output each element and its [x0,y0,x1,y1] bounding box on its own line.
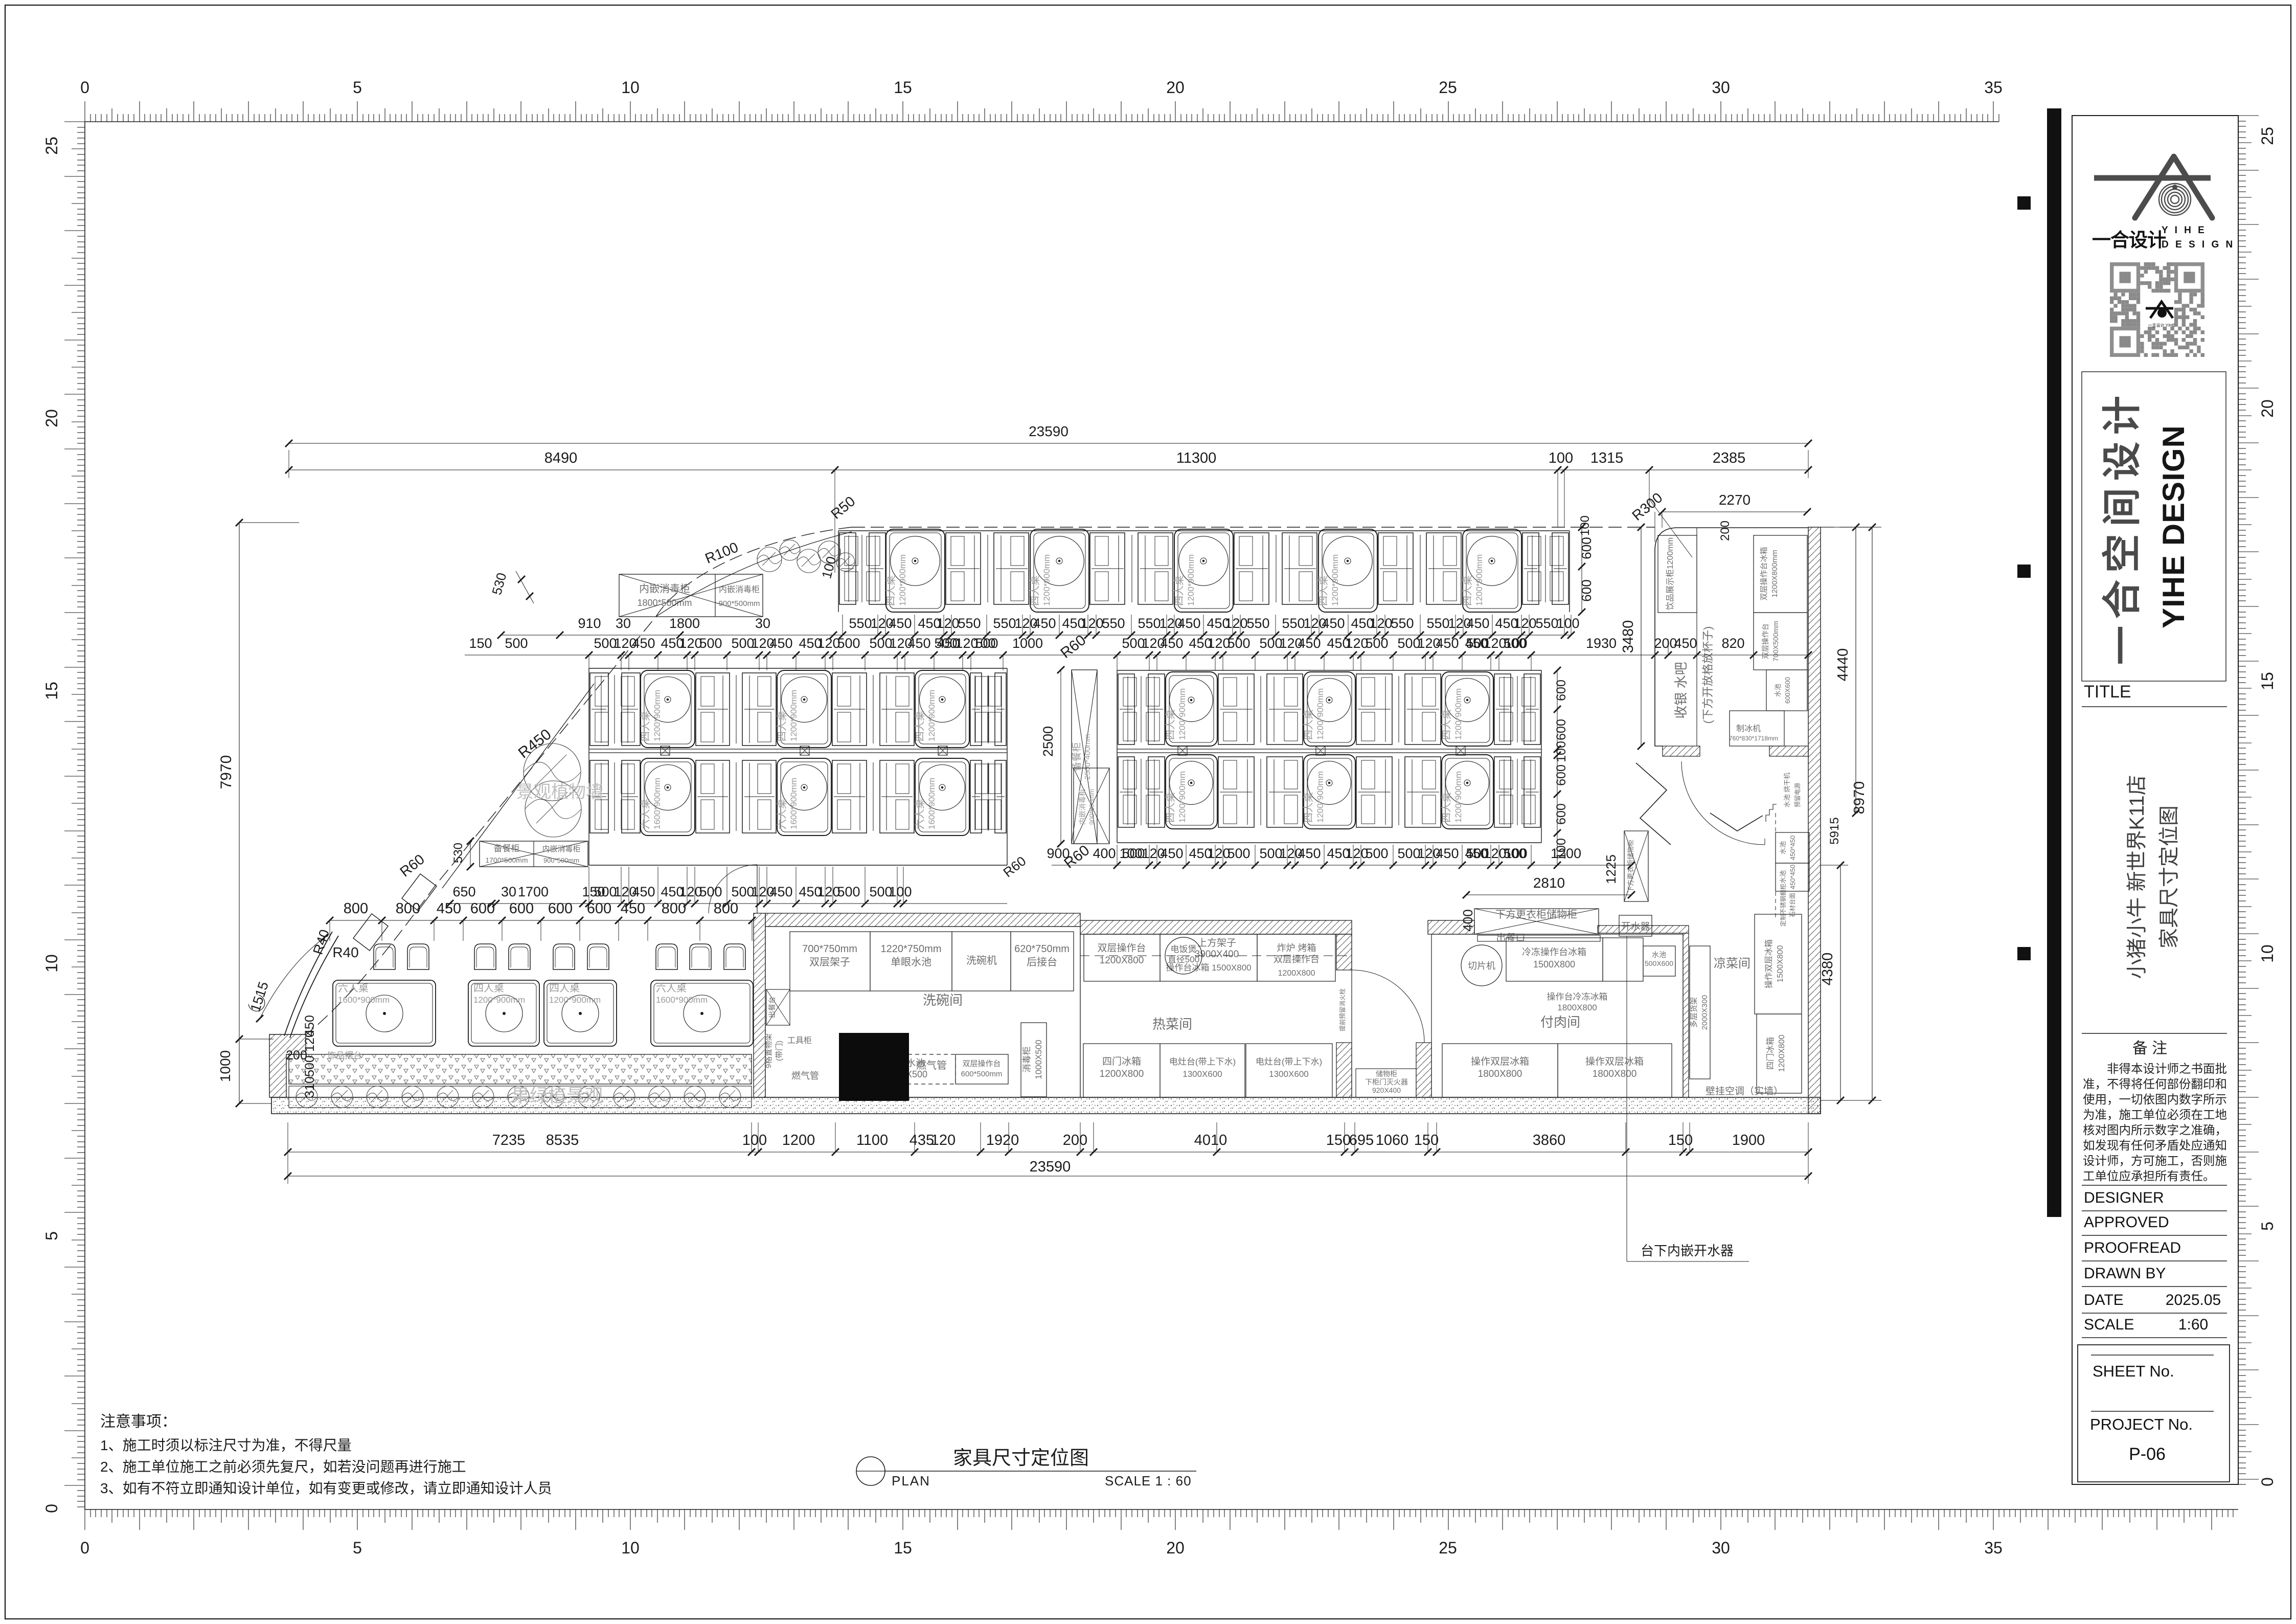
svg-text:100: 100 [1504,636,1527,651]
svg-text:23590: 23590 [1030,1159,1071,1175]
svg-text:消毒柜: 消毒柜 [1022,1047,1032,1073]
svg-text:水池: 水池 [1779,870,1787,884]
svg-text:800: 800 [714,900,738,917]
svg-text:10: 10 [621,78,640,97]
svg-text:100: 100 [889,884,912,899]
svg-text:四人桌: 四人桌 [885,575,897,606]
svg-text:1200*900mm: 1200*900mm [1177,688,1187,740]
svg-text:900*500mm: 900*500mm [543,856,579,864]
svg-text:30: 30 [616,616,631,631]
svg-text:3860: 3860 [1533,1132,1566,1148]
svg-text:四人桌: 四人桌 [1441,792,1452,823]
svg-text:450: 450 [889,616,912,631]
svg-text:定制不锈钢橱柜: 定制不锈钢橱柜 [1779,884,1787,927]
svg-text:燃气管: 燃气管 [916,1059,947,1071]
svg-text:25: 25 [1439,1539,1457,1557]
svg-text:1200*900mm: 1200*900mm [473,995,525,1005]
svg-text:一合空间设计: 一合空间设计 [2101,389,2144,665]
svg-text:1600*900mm: 1600*900mm [338,995,390,1005]
svg-text:双层操作台: 双层操作台 [962,1059,1001,1068]
svg-text:2270: 2270 [1719,492,1751,508]
svg-text:1200*900mm: 1200*900mm [898,554,907,606]
svg-text:台下内嵌开水器: 台下内嵌开水器 [1641,1243,1734,1258]
svg-text:SCALE: SCALE [2084,1316,2134,1333]
svg-text:450: 450 [1298,846,1321,861]
svg-text:1200*900mm: 1200*900mm [549,995,601,1005]
svg-text:30: 30 [1712,78,1730,97]
svg-text:四人桌: 四人桌 [1441,709,1452,740]
svg-text:1315: 1315 [1590,450,1624,466]
svg-text:1200*900mm: 1200*900mm [1315,771,1325,823]
svg-text:1800: 1800 [669,616,700,631]
svg-text:700X500mm: 700X500mm [1771,621,1780,661]
svg-text:30: 30 [501,884,516,899]
svg-text:切片机: 切片机 [1468,961,1495,971]
svg-text:1200: 1200 [782,1132,815,1148]
svg-text:450: 450 [907,636,930,651]
svg-text:四人桌: 四人桌 [1303,709,1314,740]
svg-text:800: 800 [396,900,420,917]
svg-text:预留电源: 预留电源 [1794,783,1801,807]
svg-text:为准，施工单位必须在工地: 为准，施工单位必须在工地 [2083,1108,2227,1121]
svg-text:DESIGNER: DESIGNER [2084,1189,2164,1206]
svg-text:1220*750mm: 1220*750mm [881,943,942,955]
svg-text:120: 120 [1080,616,1103,631]
svg-text:23590: 23590 [1029,423,1069,439]
svg-text:600: 600 [548,900,573,917]
svg-text:600*500mm: 600*500mm [961,1070,1003,1078]
svg-text:550: 550 [1391,616,1414,631]
svg-text:600: 600 [587,900,611,917]
svg-text:壁挂空调（实墙）: 壁挂空调（实墙） [1706,1086,1783,1097]
svg-text:8535: 8535 [546,1132,579,1148]
svg-text:550: 550 [1535,616,1558,631]
svg-text:500: 500 [1365,846,1388,861]
svg-text:双层操作台: 双层操作台 [1761,623,1769,659]
svg-text:R40: R40 [332,944,358,960]
svg-text:四人桌: 四人桌 [1462,575,1473,606]
svg-text:8490: 8490 [544,450,578,466]
svg-text:凉菜间: 凉菜间 [1714,957,1751,971]
svg-text:直径500: 直径500 [1168,955,1199,964]
svg-text:内嵌消毒柜: 内嵌消毒柜 [542,845,580,853]
svg-text:5: 5 [2258,1222,2277,1231]
svg-text:出餐台: 出餐台 [768,997,776,1018]
svg-text:5: 5 [42,1231,61,1240]
svg-text:六人桌: 六人桌 [338,982,369,994]
svg-text:4380: 4380 [1820,953,1836,986]
svg-text:上方架子: 上方架子 [1197,937,1236,949]
svg-text:TITLE: TITLE [2084,682,2131,702]
svg-text:工单位应承担所有责任。: 工单位应承担所有责任。 [2083,1169,2215,1183]
svg-text:四人桌: 四人桌 [1317,575,1329,606]
svg-text:六人桌: 六人桌 [776,799,788,829]
svg-text:400: 400 [1093,846,1116,861]
svg-text:695: 695 [1349,1132,1374,1148]
svg-text:10: 10 [621,1539,640,1557]
svg-text:DRAWN BY: DRAWN BY [2084,1265,2166,1282]
svg-text:11300: 11300 [1176,450,1217,466]
svg-text:25: 25 [2258,127,2277,145]
svg-text:550: 550 [958,616,981,631]
svg-text:100: 100 [1554,741,1568,762]
svg-text:600: 600 [1579,579,1594,601]
svg-text:2810: 2810 [1533,875,1565,891]
svg-text:1200X800mm: 1200X800mm [1770,550,1779,597]
svg-text:果绿植景观: 果绿植景观 [511,1085,603,1106]
svg-text:5: 5 [353,78,362,97]
svg-text:800: 800 [344,900,368,917]
svg-text:四人桌: 四人桌 [776,711,788,741]
svg-text:10: 10 [42,954,61,973]
svg-text:SCALE 1 : 60: SCALE 1 : 60 [1105,1473,1192,1488]
svg-text:操作双层冰箱: 操作双层冰箱 [1471,1056,1529,1067]
svg-text:450: 450 [1177,616,1200,631]
svg-text:如发现有任何矛盾处应通知: 如发现有任何矛盾处应通知 [2083,1139,2227,1152]
svg-text:15: 15 [894,1539,912,1557]
svg-text:600X600: 600X600 [1784,677,1791,704]
svg-text:1200*900mm: 1200*900mm [1177,771,1187,823]
svg-text:多层货架: 多层货架 [1690,997,1698,1028]
svg-text:700*750mm: 700*750mm [802,943,857,955]
svg-text:200: 200 [286,1048,307,1063]
svg-text:30: 30 [755,616,770,631]
svg-text:1500X800: 1500X800 [1776,945,1785,982]
svg-text:水池 烘干机: 水池 烘干机 [1783,773,1791,808]
svg-text:1600*900mm: 1600*900mm [789,778,799,829]
svg-text:1300X600: 1300X600 [1183,1069,1222,1079]
svg-text:1300X600: 1300X600 [1269,1069,1309,1079]
svg-text:四人桌: 四人桌 [1029,575,1041,606]
svg-text:120: 120 [936,616,959,631]
svg-text:4010: 4010 [1194,1132,1227,1148]
svg-text:500: 500 [505,636,528,651]
svg-text:3480: 3480 [1620,620,1636,653]
svg-text:操作双层冰箱: 操作双层冰箱 [1585,1056,1644,1067]
svg-text:水池: 水池 [1779,841,1787,854]
svg-text:内嵌消毒柜: 内嵌消毒柜 [1078,789,1086,825]
svg-text:9格置物架: 9格置物架 [764,1033,773,1068]
svg-text:500X600: 500X600 [1645,959,1673,967]
svg-text:单眼水池: 单眼水池 [891,956,931,968]
svg-text:洗碗间: 洗碗间 [923,993,963,1008]
svg-text:760*830*1718mm: 760*830*1718mm [1729,735,1778,742]
svg-text:500: 500 [837,884,860,899]
svg-text:10: 10 [2258,944,2277,963]
svg-text:450: 450 [1466,616,1489,631]
svg-text:双层操作台: 双层操作台 [1097,942,1146,954]
svg-text:DATE: DATE [2084,1292,2124,1309]
svg-text:530: 530 [451,843,465,863]
svg-text:1600*900mm: 1600*900mm [927,778,937,829]
svg-text:1、施工时须以标注尺寸为准，不得尺量: 1、施工时须以标注尺寸为准，不得尺量 [100,1437,352,1453]
svg-text:500: 500 [1227,636,1250,651]
svg-text:饰品摆台: 饰品摆台 [327,1051,362,1061]
svg-text:D E S I G N: D E S I G N [2162,239,2235,250]
svg-text:炸炉 烤箱: 炸炉 烤箱 [1277,943,1316,953]
svg-text:1800X800: 1800X800 [1478,1069,1522,1079]
svg-text:PLAN: PLAN [892,1473,930,1488]
svg-text:25: 25 [1439,78,1457,97]
svg-text:600: 600 [1554,803,1568,825]
svg-text:500: 500 [699,636,722,651]
svg-text:3、如有不符立即通知设计单位，如有变更或修改，请立即通知设计: 3、如有不符立即通知设计单位，如有变更或修改，请立即通知设计人员 [100,1480,552,1496]
svg-text:设计师，方可施工，否则施: 设计师，方可施工，否则施 [2083,1154,2227,1167]
svg-text:620*750mm: 620*750mm [1014,943,1070,955]
svg-text:15: 15 [2258,672,2277,690]
svg-text:六人桌: 六人桌 [914,799,926,829]
svg-text:备餐柜: 备餐柜 [494,844,520,853]
svg-text:450: 450 [437,900,461,917]
svg-text:450*450: 450*450 [1789,865,1797,889]
svg-text:1200*900mm: 1200*900mm [789,690,799,741]
svg-text:四人桌: 四人桌 [1165,792,1176,823]
svg-text:35: 35 [1984,1539,2003,1557]
svg-text:500: 500 [934,636,957,651]
svg-text:2500: 2500 [1040,726,1056,757]
svg-text:550: 550 [1138,616,1161,631]
svg-text:石材台面: 石材台面 [1788,893,1796,917]
svg-text:5915: 5915 [1828,817,1842,844]
svg-text:15: 15 [42,682,61,700]
svg-text:1930: 1930 [1586,636,1617,651]
svg-text:1600*900mm: 1600*900mm [652,778,662,829]
svg-text:15: 15 [894,78,912,97]
svg-text:7235: 7235 [492,1132,526,1148]
svg-text:150: 150 [1326,1132,1351,1148]
svg-text:四人桌: 四人桌 [640,711,651,741]
svg-text:下柜门灭火器: 下柜门灭火器 [1365,1078,1408,1086]
svg-text:四人桌: 四人桌 [1165,709,1176,740]
svg-text:120: 120 [931,1132,956,1148]
svg-text:电饭煲: 电饭煲 [1171,944,1197,954]
svg-text:四人桌: 四人桌 [473,982,504,994]
svg-text:内嵌消毒柜: 内嵌消毒柜 [719,585,760,594]
svg-text:1200*900mm: 1200*900mm [1474,554,1484,606]
svg-text:0: 0 [2258,1477,2277,1486]
svg-text:20: 20 [2258,399,2277,418]
svg-text:1800X800: 1800X800 [1593,1069,1637,1079]
svg-text:450: 450 [1298,636,1321,651]
svg-text:收银 水吧: 收银 水吧 [1673,662,1689,718]
svg-text:1225: 1225 [1603,854,1619,884]
svg-text:六人桌: 六人桌 [640,799,651,829]
svg-text:工具柜: 工具柜 [787,1036,812,1045]
svg-text:1200*900mm: 1200*900mm [1042,554,1052,606]
svg-text:电灶台(带上下水): 电灶台(带上下水) [1169,1057,1236,1067]
svg-text:5: 5 [353,1539,362,1557]
svg-text:(下方开放格放杯子): (下方开放格放杯子) [1701,626,1714,724]
svg-text:一合设计: 一合设计 [2092,230,2166,251]
svg-text:热菜间: 热菜间 [1152,1017,1192,1032]
svg-text:600: 600 [1554,764,1568,786]
svg-text:0: 0 [80,1539,89,1557]
svg-text:操作台冷冻冰箱: 操作台冷冻冰箱 [1547,992,1608,1002]
svg-text:1200*900mm: 1200*900mm [1453,688,1463,740]
svg-text:310: 310 [303,1076,317,1098]
svg-text:Y I H E: Y I H E [2162,225,2207,236]
svg-text:四人桌: 四人桌 [1173,575,1185,606]
svg-text:100: 100 [972,636,995,651]
svg-text:1200X800: 1200X800 [1100,955,1144,966]
svg-text:600: 600 [470,900,495,917]
svg-text:7970: 7970 [218,755,235,790]
svg-text:1100: 1100 [856,1132,888,1148]
svg-text:100: 100 [1504,846,1527,861]
svg-text:核对图内所示数字之准确，: 核对图内所示数字之准确， [2083,1123,2227,1137]
svg-text:2025.05: 2025.05 [2166,1292,2221,1309]
svg-text:910: 910 [578,616,601,631]
svg-text:四人桌: 四人桌 [1303,792,1314,823]
svg-text:100: 100 [742,1132,767,1148]
svg-text:APPROVED: APPROVED [2084,1214,2169,1231]
svg-text:150: 150 [469,636,492,651]
svg-text:小猪小牛 新世界K11店: 小猪小牛 新世界K11店 [2126,775,2148,979]
svg-text:P-06: P-06 [2129,1445,2166,1464]
svg-text:450: 450 [1436,636,1459,651]
svg-text:1000: 1000 [1012,636,1043,651]
svg-text:注意事项：: 注意事项： [100,1413,177,1430]
svg-text:120: 120 [1224,616,1247,631]
svg-text:2000X300: 2000X300 [1700,995,1709,1030]
svg-text:制冰机: 制冰机 [1736,724,1761,733]
svg-text:550: 550 [1102,616,1125,631]
svg-text:0: 0 [80,78,89,97]
svg-text:下方更衣柜储物柜: 下方更衣柜储物柜 [1495,909,1577,920]
svg-text:100: 100 [1554,838,1568,860]
svg-text:一言设计 YIHE: 一言设计 YIHE [2148,323,2175,328]
svg-text:PROOFREAD: PROOFREAD [2084,1239,2181,1256]
svg-text:600: 600 [1579,537,1594,559]
svg-text:920X400: 920X400 [1372,1086,1401,1094]
svg-text:800: 800 [662,900,686,917]
svg-text:450: 450 [632,884,655,899]
svg-text:2、施工单位施工之前必须先复尺，如若没问题再进行施工: 2、施工单位施工之前必须先复尺，如若没问题再进行施工 [100,1459,466,1475]
svg-text:1200X800: 1200X800 [1778,1034,1786,1072]
svg-text:600: 600 [1554,719,1568,740]
svg-text:四人桌: 四人桌 [914,711,926,741]
svg-text:450: 450 [769,884,792,899]
svg-text:100: 100 [1549,450,1573,466]
svg-text:450: 450 [1322,616,1345,631]
svg-text:电灶台(带上下水): 电灶台(带上下水) [1256,1057,1322,1067]
svg-text:1060: 1060 [1376,1132,1409,1148]
svg-text:1920: 1920 [986,1132,1019,1148]
svg-text:550: 550 [1282,616,1305,631]
svg-text:4440: 4440 [1835,648,1851,682]
svg-text:450: 450 [1674,636,1697,651]
svg-text:1200*900mm: 1200*900mm [1315,688,1325,740]
svg-text:450: 450 [1160,846,1183,861]
svg-text:500: 500 [837,636,860,651]
svg-text:水池: 水池 [1774,684,1782,697]
svg-text:洗碗机: 洗碗机 [966,955,997,966]
svg-text:500: 500 [1227,846,1250,861]
svg-text:120: 120 [1369,616,1392,631]
svg-text:820: 820 [1721,636,1744,651]
svg-text:30: 30 [1712,1539,1730,1557]
svg-text:非得本设计师之书面批: 非得本设计师之书面批 [2083,1062,2227,1075]
svg-text:1200*900mm: 1200*900mm [927,690,937,741]
svg-text:20: 20 [1166,78,1185,97]
svg-text:双层架子: 双层架子 [809,956,850,968]
svg-text:500: 500 [1365,636,1388,651]
svg-text:0: 0 [42,1504,61,1513]
svg-text:1200*900mm: 1200*900mm [1453,771,1463,823]
svg-text:200: 200 [1718,521,1732,541]
svg-text:使用，一切依图内数字所示: 使用，一切依图内数字所示 [2083,1093,2227,1106]
svg-text:100: 100 [1578,515,1592,536]
svg-text:提前预留消火栓: 提前预留消火栓 [1338,988,1346,1031]
svg-text:1200X800: 1200X800 [1100,1069,1144,1079]
svg-text:家具尺寸定位图: 家具尺寸定位图 [953,1448,1089,1469]
svg-text:1200X800: 1200X800 [1278,969,1315,978]
svg-text:1:60: 1:60 [2178,1316,2208,1333]
svg-text:150: 150 [1668,1132,1693,1148]
svg-text:550: 550 [993,616,1016,631]
svg-text:35: 35 [1984,78,2003,97]
svg-text:操作双层冰箱: 操作双层冰箱 [1764,939,1774,988]
svg-text:双层操作台冰箱: 双层操作台冰箱 [1760,547,1768,600]
svg-text:付肉间: 付肉间 [1540,1014,1580,1030]
svg-text:1200*900mm: 1200*900mm [1330,554,1340,606]
svg-text:450*450: 450*450 [1789,836,1797,860]
svg-text:450: 450 [1160,636,1183,651]
svg-text:650: 650 [452,884,475,899]
svg-text:1700*500mm: 1700*500mm [485,856,528,864]
svg-text:水池: 水池 [1652,951,1666,959]
svg-text:1600*900mm: 1600*900mm [656,995,708,1005]
svg-text:150: 150 [1414,1132,1439,1148]
svg-text:20: 20 [42,409,61,427]
svg-text:家具尺寸定位图: 家具尺寸定位图 [2158,805,2180,949]
svg-text:1900: 1900 [1732,1132,1765,1148]
svg-text:四人桌: 四人桌 [549,982,580,994]
svg-text:20: 20 [1166,1539,1185,1557]
svg-text:900*500mm: 900*500mm [719,599,760,608]
svg-text:550: 550 [1246,616,1269,631]
svg-text:1200*900mm: 1200*900mm [1186,554,1196,606]
svg-text:1200*900mm: 1200*900mm [652,690,662,741]
svg-text:YIHE DESIGN: YIHE DESIGN [2156,425,2191,628]
svg-text:(带门): (带门) [775,1041,784,1061]
svg-text:450: 450 [632,636,655,651]
svg-text:1500X800: 1500X800 [1533,959,1575,969]
svg-text:四门冰箱: 四门冰箱 [1102,1056,1141,1067]
svg-text:100: 100 [1556,616,1579,631]
svg-text:储物柜: 储物柜 [1376,1070,1397,1078]
svg-text:后接台: 后接台 [1027,956,1057,968]
svg-text:450: 450 [621,900,645,917]
svg-text:内嵌消毒柜: 内嵌消毒柜 [639,583,690,595]
svg-text:准，不得将任何部份翻印和: 准，不得将任何部份翻印和 [2083,1077,2227,1091]
svg-text:四门冰箱: 四门冰箱 [1766,1037,1775,1070]
svg-text:六人桌: 六人桌 [656,982,687,994]
svg-text:25: 25 [42,137,61,155]
svg-text:550: 550 [849,616,872,631]
svg-text:1000X500: 1000X500 [1034,1040,1043,1079]
svg-text:200: 200 [1063,1132,1087,1148]
svg-text:450: 450 [1033,616,1056,631]
svg-text:450: 450 [1436,846,1459,861]
svg-text:600: 600 [1554,680,1568,701]
svg-text:2385: 2385 [1713,450,1746,466]
svg-text:500: 500 [699,884,722,899]
svg-text:400: 400 [1460,909,1475,931]
svg-text:SHEET No.: SHEET No. [2093,1362,2174,1380]
svg-text:PROJECT No.: PROJECT No. [2090,1415,2193,1433]
svg-text:冷冻操作台冰箱: 冷冻操作台冰箱 [1522,947,1586,957]
